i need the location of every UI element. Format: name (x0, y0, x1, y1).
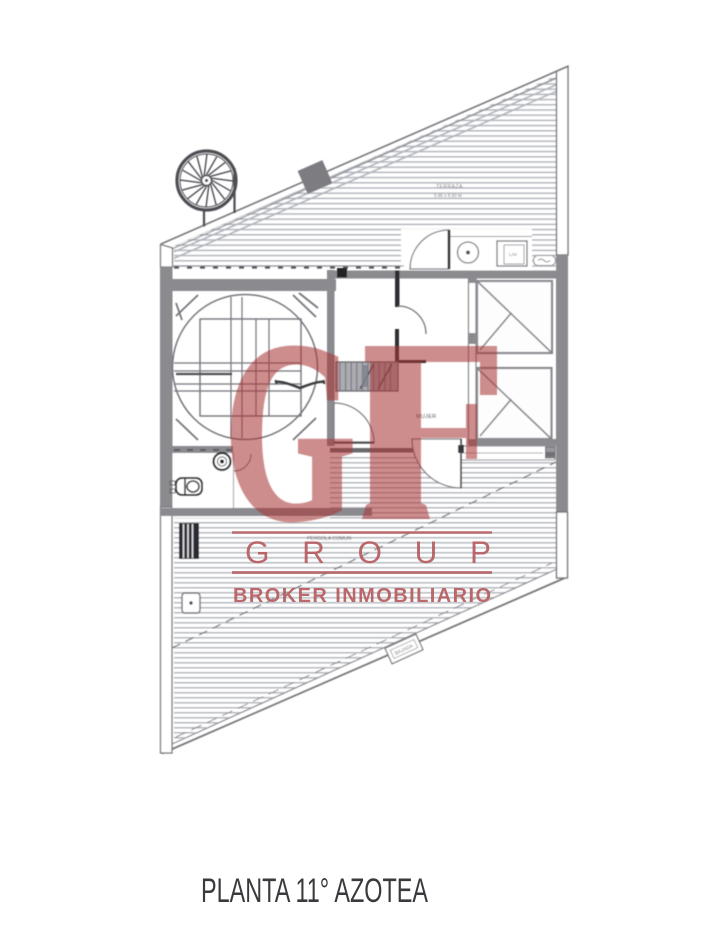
svg-text:PLANTA 11° AZOTEA: PLANTA 11° AZOTEA (201, 872, 428, 910)
svg-text:LAV: LAV (509, 252, 517, 257)
svg-text:TERRAZA: TERRAZA (436, 184, 463, 190)
svg-text:BROKER INMOBILIARIO: BROKER INMOBILIARIO (233, 585, 491, 607)
svg-text:5.85 x 8.50 M: 5.85 x 8.50 M (434, 193, 462, 198)
svg-text:G: G (225, 290, 356, 572)
